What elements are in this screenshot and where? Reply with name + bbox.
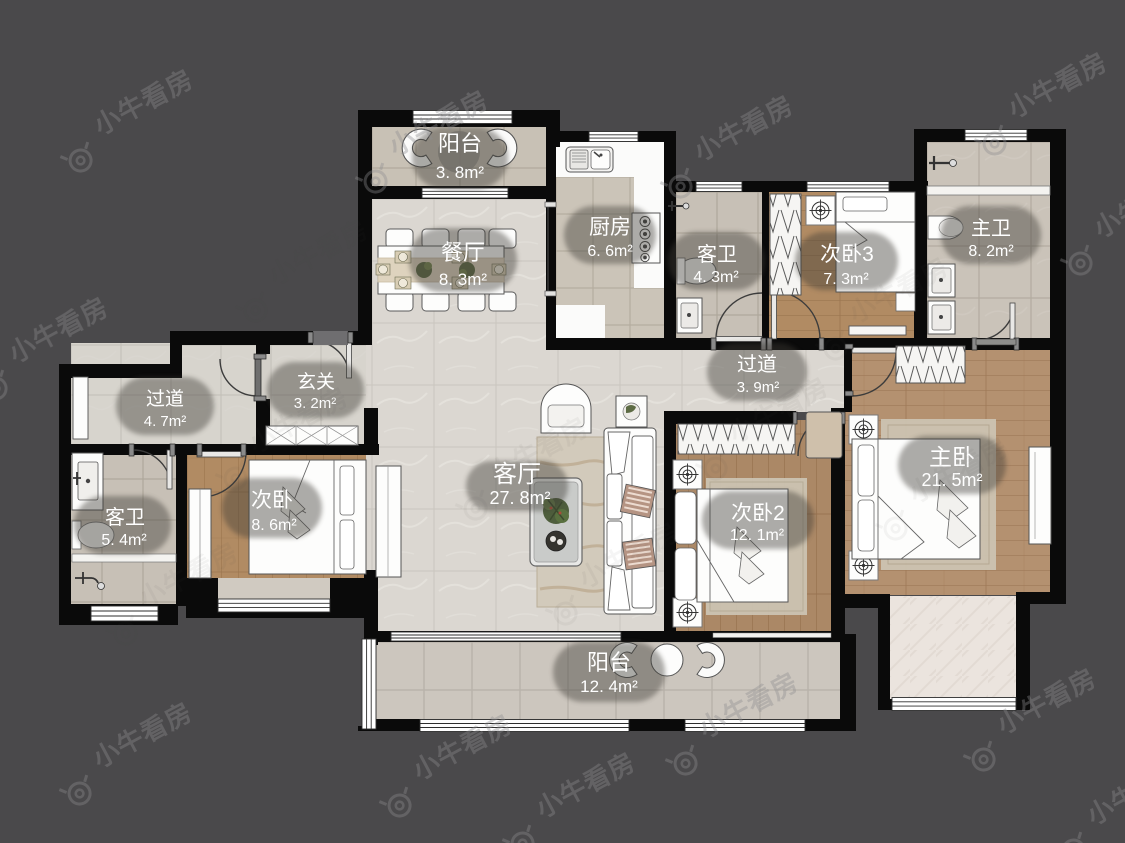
- svg-text:8. 2m²: 8. 2m²: [968, 243, 1014, 260]
- svg-text:27. 8m²: 27. 8m²: [489, 488, 550, 508]
- svg-text:3. 8m²: 3. 8m²: [436, 163, 485, 182]
- svg-text:次卧3: 次卧3: [820, 243, 874, 266]
- svg-text:过道: 过道: [737, 353, 777, 376]
- svg-text:4. 7m²: 4. 7m²: [144, 413, 187, 430]
- svg-text:次卧2: 次卧2: [731, 502, 785, 525]
- svg-text:8. 3m²: 8. 3m²: [439, 270, 488, 289]
- svg-text:4. 3m²: 4. 3m²: [693, 269, 739, 286]
- svg-text:7. 3m²: 7. 3m²: [823, 271, 869, 288]
- svg-text:12. 4m²: 12. 4m²: [580, 677, 638, 696]
- svg-text:3. 9m²: 3. 9m²: [737, 379, 780, 396]
- svg-text:次卧: 次卧: [251, 489, 293, 512]
- svg-text:过道: 过道: [146, 388, 184, 410]
- svg-text:5. 4m²: 5. 4m²: [101, 532, 147, 549]
- svg-text:主卫: 主卫: [971, 217, 1011, 240]
- svg-text:客卫: 客卫: [105, 506, 145, 529]
- svg-text:8. 6m²: 8. 6m²: [251, 517, 297, 534]
- svg-text:客卫: 客卫: [697, 243, 737, 266]
- svg-text:6. 6m²: 6. 6m²: [587, 243, 633, 260]
- svg-text:阳台: 阳台: [587, 650, 631, 675]
- svg-text:餐厅: 餐厅: [441, 240, 485, 265]
- svg-text:12. 1m²: 12. 1m²: [730, 527, 785, 544]
- svg-text:厨房: 厨房: [589, 216, 631, 239]
